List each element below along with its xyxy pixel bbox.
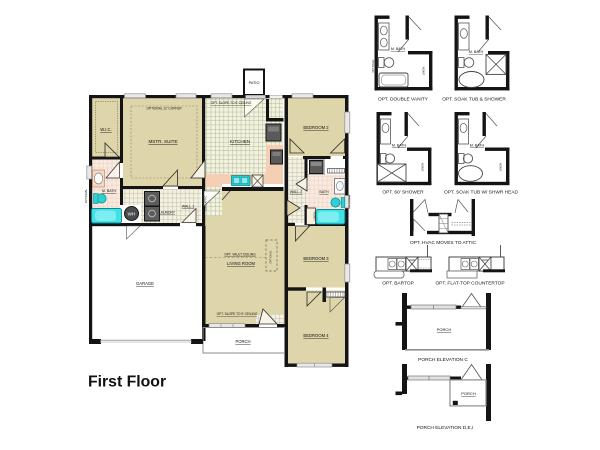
svg-text:PORCH: PORCH	[437, 327, 452, 332]
svg-text:First Floor: First Floor	[88, 374, 166, 391]
svg-text:OPT. DOUBLE VANITY: OPT. DOUBLE VANITY	[378, 96, 429, 102]
svg-text:LINEN: LINEN	[313, 212, 317, 221]
svg-text:LINEN: LINEN	[499, 163, 503, 171]
svg-text:OPT. SOAK TUB W/ SHWR HEAD: OPT. SOAK TUB W/ SHWR HEAD	[444, 190, 519, 196]
svg-text:LINEN: LINEN	[422, 67, 426, 75]
svg-text:WH: WH	[128, 212, 136, 217]
svg-text:M. BATH: M. BATH	[469, 50, 484, 54]
svg-text:OPTIONAL: OPTIONAL	[269, 250, 273, 264]
svg-text:PATIO: PATIO	[249, 81, 260, 85]
svg-text:OPT. SLOPE TO 9' CEILING: OPT. SLOPE TO 9' CEILING	[217, 312, 258, 316]
svg-text:LINEN: LINEN	[421, 163, 425, 171]
svg-text:W.I.C.: W.I.C.	[100, 127, 111, 132]
svg-text:OPT. FLAT-TOP COUNTERTOP: OPT. FLAT-TOP COUNTERTOP	[435, 280, 504, 286]
svg-text:OPT. ATTIC: OPT. ATTIC	[204, 196, 208, 211]
svg-text:LAUNDRY: LAUNDRY	[159, 211, 176, 215]
svg-text:OPT. HVAC MOVES TO ATTIC: OPT. HVAC MOVES TO ATTIC	[410, 240, 477, 246]
svg-text:OPTIONAL: OPTIONAL	[347, 194, 351, 209]
svg-text:OPT. SOAK TUB & SHOWER: OPT. SOAK TUB & SHOWER	[442, 96, 506, 102]
svg-text:PORCH ELEVATION C: PORCH ELEVATION C	[418, 357, 468, 363]
svg-text:OPT. VAULT CEILING: OPT. VAULT CEILING	[224, 253, 256, 257]
svg-text:OPT. BARTOP: OPT. BARTOP	[382, 280, 414, 286]
svg-text:D/W: D/W	[409, 258, 415, 262]
svg-text:M. BATH: M. BATH	[102, 189, 117, 193]
svg-text:BATH: BATH	[319, 190, 329, 194]
svg-text:PORCH: PORCH	[461, 391, 476, 396]
svg-text:D/W: D/W	[482, 258, 488, 262]
svg-text:PORCH: PORCH	[235, 339, 250, 344]
svg-text:OPT. SLOPE TO 9' CEILING: OPT. SLOPE TO 9' CEILING	[211, 101, 252, 105]
svg-text:M. BATH: M. BATH	[470, 144, 485, 148]
svg-text:OPTIONAL 12' COFFER: OPTIONAL 12' COFFER	[146, 107, 182, 111]
svg-text:WALL 1: WALL 1	[182, 205, 195, 209]
svg-text:GARAGE: GARAGE	[136, 281, 154, 286]
svg-text:LIVING ROOM: LIVING ROOM	[227, 261, 255, 266]
svg-text:KITCHEN: KITCHEN	[230, 139, 250, 144]
svg-text:M. BATH: M. BATH	[392, 144, 407, 148]
svg-text:OPTIONAL: OPTIONAL	[84, 188, 88, 203]
svg-text:BEDROOM 3: BEDROOM 3	[303, 256, 329, 261]
svg-text:BEDROOM 4: BEDROOM 4	[303, 333, 329, 338]
svg-text:MSTR. SUITE: MSTR. SUITE	[148, 139, 177, 144]
svg-text:M. BATH: M. BATH	[391, 47, 406, 51]
svg-text:WALL 2: WALL 2	[290, 190, 303, 194]
svg-text:OPT. 60' SHOWER: OPT. 60' SHOWER	[382, 190, 424, 196]
svg-text:PORCH ELEVATION D,E,I: PORCH ELEVATION D,E,I	[417, 425, 474, 431]
svg-text:OPTIONAL: OPTIONAL	[371, 59, 375, 73]
svg-text:BEDROOM 2: BEDROOM 2	[303, 125, 329, 130]
